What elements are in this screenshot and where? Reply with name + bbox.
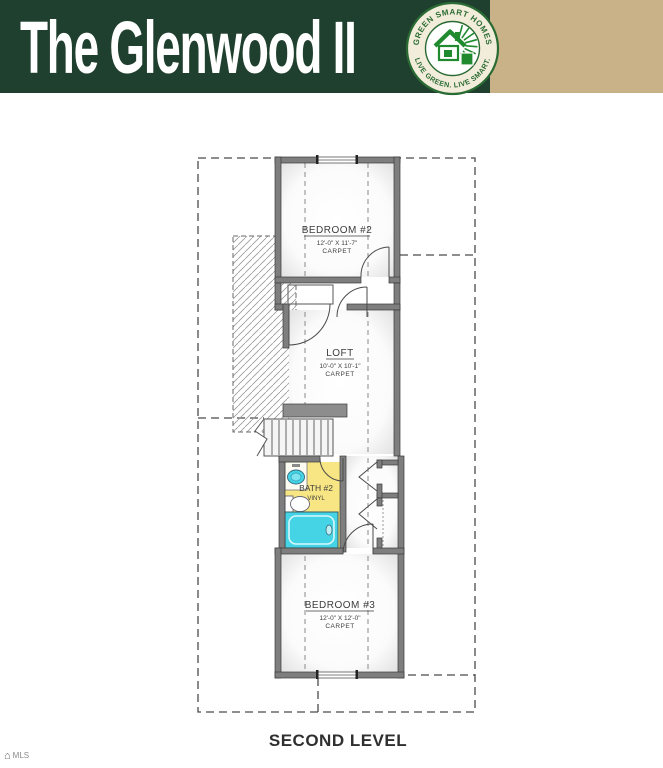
header-banner: The Glenwood II FEATURES: 3 Bedroom 2.5 … xyxy=(0,0,663,93)
green-smart-homes-logo: GREEN SMART HOMES LIVE GREEN. LIVE SMART… xyxy=(405,1,500,96)
bedroom3-floor: CARPET xyxy=(325,623,354,630)
bedroom3-label: BEDROOM #3 xyxy=(305,600,376,611)
mls-watermark-text: MLS xyxy=(13,751,29,760)
mls-watermark: ⌂ MLS xyxy=(4,751,29,760)
header-tan-panel: FEATURES: 3 Bedroom 2.5 Bath 1,793 Squar… xyxy=(490,0,663,93)
bedroom2-floor: CARPET xyxy=(322,248,351,255)
flyer-page: BEDROOM #2 12'-0" X 11'-7" CARPET LOFT 1… xyxy=(0,0,663,768)
loft-dims: 10'-0" X 10'-1" xyxy=(319,363,361,370)
plan-caption: SECOND LEVEL xyxy=(269,731,407,750)
plan-title: The Glenwood II xyxy=(20,0,356,93)
bath2-label: BATH #2 xyxy=(299,483,333,493)
bedroom2-dims: 12'-0" X 11'-7" xyxy=(317,240,358,247)
bedroom2-label: BEDROOM #2 xyxy=(302,225,373,236)
loft-floor: CARPET xyxy=(325,371,354,378)
mls-house-icon: ⌂ xyxy=(4,752,11,760)
staircase xyxy=(255,419,333,456)
bedroom3-dims: 12'-0" X 12'-0" xyxy=(319,615,361,622)
bath2-floor: VINYL xyxy=(307,496,325,502)
loft-label: LOFT xyxy=(326,348,354,359)
floor-plan-drawing: BEDROOM #2 12'-0" X 11'-7" CARPET LOFT 1… xyxy=(0,0,663,768)
bath-fixtures xyxy=(285,462,340,548)
